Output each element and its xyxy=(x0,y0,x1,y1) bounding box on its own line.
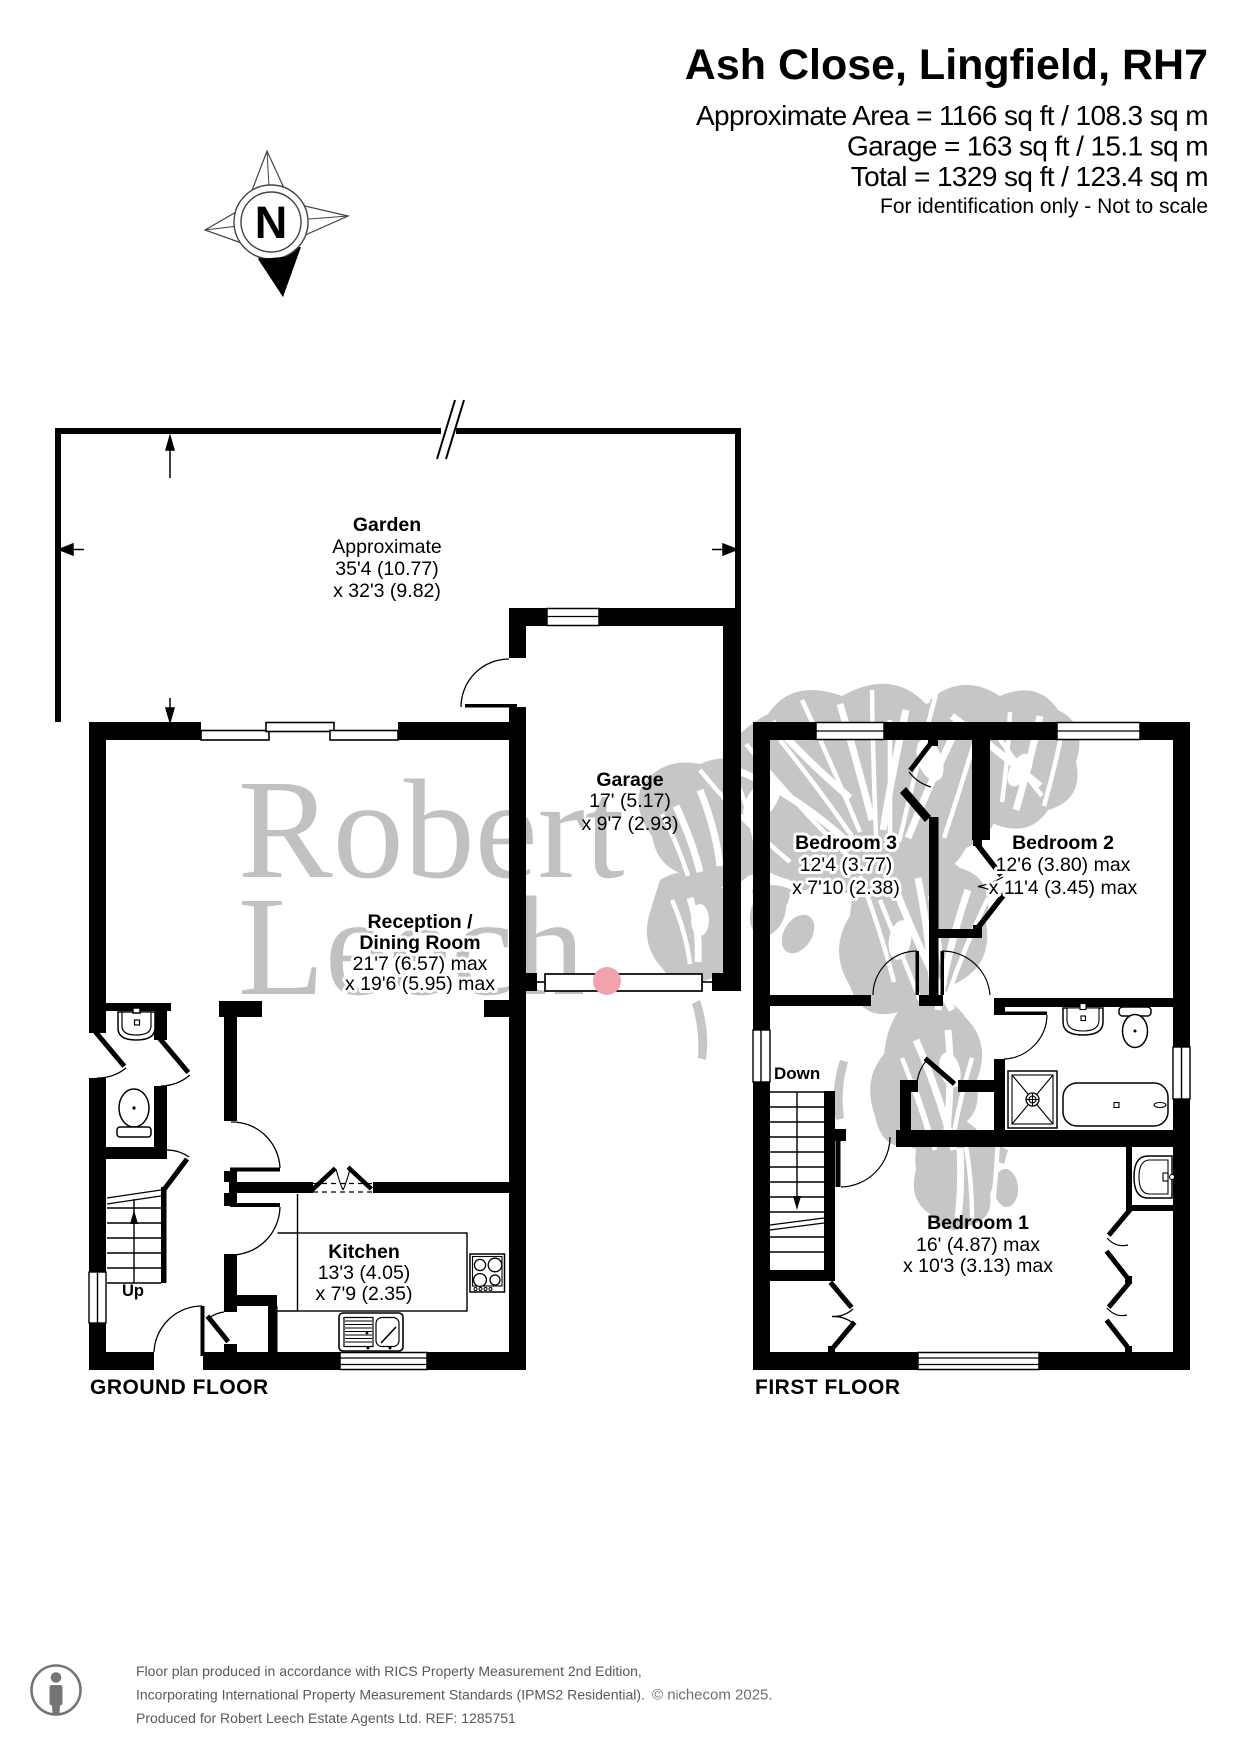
svg-text:17' (5.17): 17' (5.17) xyxy=(589,790,671,812)
svg-text:Kitchen: Kitchen xyxy=(328,1241,400,1263)
svg-text:Bedroom 1: Bedroom 1 xyxy=(927,1212,1029,1234)
svg-text:Bedroom 2: Bedroom 2 xyxy=(1012,832,1114,854)
svg-text:GROUND FLOOR: GROUND FLOOR xyxy=(90,1376,269,1399)
svg-text:x 7'10 (2.38): x 7'10 (2.38) xyxy=(792,877,900,899)
svg-text:Up: Up xyxy=(122,1282,144,1300)
svg-text:12'6 (3.80) max: 12'6 (3.80) max xyxy=(996,854,1131,876)
svg-text:Bedroom 3: Bedroom 3 xyxy=(795,832,897,854)
svg-text:Floor plan produced in accorda: Floor plan produced in accordance with R… xyxy=(136,1663,642,1679)
svg-text:Approximate Area = 1166 sq ft: Approximate Area = 1166 sq ft / 108.3 sq… xyxy=(696,100,1208,131)
svg-text:Incorporating International Pr: Incorporating International Property Mea… xyxy=(136,1687,645,1703)
svg-text:Garage: Garage xyxy=(596,769,663,791)
svg-text:Dining Room: Dining Room xyxy=(359,932,480,954)
svg-text:x 19'6 (5.95) max: x 19'6 (5.95) max xyxy=(345,973,495,995)
svg-text:Ash Close, Lingfield, RH7: Ash Close, Lingfield, RH7 xyxy=(685,41,1208,89)
svg-text:x 7'9 (2.35): x 7'9 (2.35) xyxy=(316,1283,413,1305)
svg-text:Down: Down xyxy=(774,1064,820,1083)
svg-text:x 32'3 (9.82): x 32'3 (9.82) xyxy=(333,580,441,602)
svg-text:FIRST FLOOR: FIRST FLOOR xyxy=(755,1376,901,1399)
svg-text:N: N xyxy=(255,197,288,248)
svg-text:© nichecom 2025.: © nichecom 2025. xyxy=(652,1687,773,1704)
svg-text:Approximate: Approximate xyxy=(332,536,441,558)
svg-text:Reception /: Reception / xyxy=(367,911,473,933)
svg-text:21'7 (6.57) max: 21'7 (6.57) max xyxy=(353,953,488,975)
svg-text:Garden: Garden xyxy=(353,514,421,536)
svg-text:12'4 (3.77): 12'4 (3.77) xyxy=(800,854,893,876)
svg-text:16' (4.87) max: 16' (4.87) max xyxy=(916,1234,1040,1256)
svg-text:Produced for Robert Leech Esta: Produced for Robert Leech Estate Agents … xyxy=(136,1710,516,1726)
svg-text:x 9'7 (2.93): x 9'7 (2.93) xyxy=(582,813,679,835)
svg-text:For identification only - Not: For identification only - Not to scale xyxy=(880,195,1208,218)
svg-text:13'3 (4.05): 13'3 (4.05) xyxy=(318,1262,411,1284)
svg-text:Total = 1329 sq ft / 123.4 sq: Total = 1329 sq ft / 123.4 sq m xyxy=(851,161,1208,192)
svg-text:x 11'4 (3.45) max: x 11'4 (3.45) max xyxy=(989,877,1138,899)
svg-text:Garage = 163 sq ft / 15.1 sq m: Garage = 163 sq ft / 15.1 sq m xyxy=(847,131,1208,162)
svg-text:35'4 (10.77): 35'4 (10.77) xyxy=(335,558,438,580)
svg-text:x 10'3 (3.13) max: x 10'3 (3.13) max xyxy=(903,1255,1053,1277)
